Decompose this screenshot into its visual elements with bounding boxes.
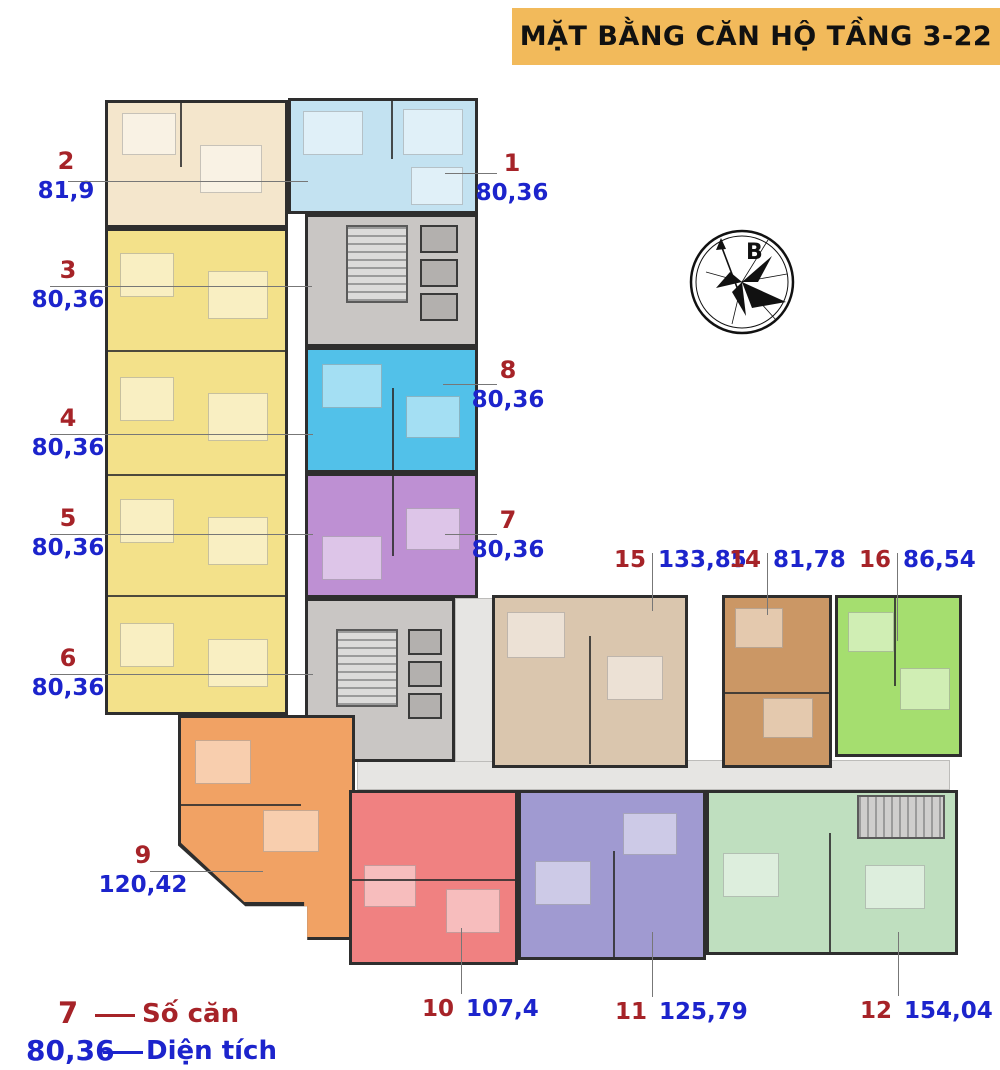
unit-7-region xyxy=(305,473,478,598)
unit-7-number: 7 xyxy=(463,507,553,533)
unit-2-label: 2 81,9 xyxy=(21,148,111,204)
page-title-banner: MẶT BẰNG CĂN HỘ TẦNG 3-22 xyxy=(512,8,1000,65)
unit-12-number: 12 xyxy=(842,998,892,1024)
unit-10-region xyxy=(349,790,518,965)
leader-line xyxy=(50,286,312,287)
unit-3-area: 80,36 xyxy=(23,288,113,313)
unit-4-number: 4 xyxy=(23,405,113,431)
leader-line xyxy=(68,181,308,182)
leader-line xyxy=(445,173,497,174)
legend-number-label: Số căn xyxy=(142,999,239,1029)
elevator-stair-core-top xyxy=(305,214,478,347)
corridor-vertical xyxy=(455,598,495,762)
legend-area-line xyxy=(103,1051,143,1054)
unit-12-region xyxy=(706,790,958,955)
unit-14-number: 14 xyxy=(711,547,761,573)
units-3-6-region xyxy=(105,228,288,715)
unit-10-label: 10 107,4 xyxy=(404,996,539,1022)
unit-3-number: 3 xyxy=(23,257,113,283)
unit-6-area: 80,36 xyxy=(23,676,113,701)
unit-8-label: 8 80,36 xyxy=(463,357,553,413)
compass-north-label: B xyxy=(746,240,763,265)
unit-4-label: 4 80,36 xyxy=(23,405,113,461)
leader-line xyxy=(767,553,768,615)
unit-1-region xyxy=(288,98,478,214)
legend-number-example: 7 xyxy=(58,996,78,1030)
leader-line xyxy=(461,928,462,994)
unit-6-label: 6 80,36 xyxy=(23,645,113,701)
leader-line xyxy=(150,871,263,872)
unit-16-region xyxy=(835,595,962,757)
leader-line xyxy=(443,384,497,385)
unit-16-area: 86,54 xyxy=(903,548,976,573)
staircase-icon xyxy=(857,795,945,839)
unit-6-number: 6 xyxy=(23,645,113,671)
unit-12-label: 12 154,04 xyxy=(842,998,993,1024)
unit-12-area: 154,04 xyxy=(904,999,993,1024)
unit-8-region xyxy=(305,347,478,473)
leader-line xyxy=(898,932,899,996)
leader-line xyxy=(50,534,313,535)
unit-5-area: 80,36 xyxy=(23,536,113,561)
unit-15-number: 15 xyxy=(596,547,646,573)
leader-line xyxy=(50,434,313,435)
unit-11-number: 11 xyxy=(597,999,647,1025)
unit-9-area: 120,42 xyxy=(98,873,188,898)
unit-16-label: 16 86,54 xyxy=(841,547,976,573)
unit-8-area: 80,36 xyxy=(463,388,553,413)
unit-10-number: 10 xyxy=(404,996,454,1022)
unit-9-region xyxy=(178,715,355,940)
unit-11-label: 11 125,79 xyxy=(597,999,748,1025)
unit-7-label: 7 80,36 xyxy=(463,507,553,563)
unit-15-region xyxy=(492,595,688,768)
staircase-icon xyxy=(336,629,398,707)
leader-line xyxy=(652,553,653,611)
elevator-icon xyxy=(420,225,458,253)
unit-5-label: 5 80,36 xyxy=(23,505,113,561)
floor-plan-page: MẶT BẰNG CĂN HỘ TẦNG 3-22 xyxy=(0,0,1000,1070)
unit-2-number: 2 xyxy=(21,148,111,174)
unit-14-label: 14 81,78 xyxy=(711,547,846,573)
unit-1-area: 80,36 xyxy=(467,181,557,206)
elevator-icon xyxy=(408,693,442,719)
unit-9-label: 9 120,42 xyxy=(98,842,188,898)
legend-number-line xyxy=(95,1014,135,1017)
unit-7-area: 80,36 xyxy=(463,538,553,563)
unit-10-area: 107,4 xyxy=(466,997,539,1022)
unit-9-number: 9 xyxy=(98,842,188,868)
unit-14-area: 81,78 xyxy=(773,548,846,573)
unit-16-number: 16 xyxy=(841,547,891,573)
unit-11-region xyxy=(518,790,706,960)
legend-area-example: 80,36 xyxy=(26,1034,115,1067)
unit-3-label: 3 80,36 xyxy=(23,257,113,313)
leader-line xyxy=(50,674,313,675)
compass-icon: B xyxy=(688,228,796,336)
elevator-icon xyxy=(420,293,458,321)
unit-2-region xyxy=(105,100,288,228)
legend-area-label: Diện tích xyxy=(146,1036,277,1066)
unit-14-region xyxy=(722,595,832,768)
unit-11-area: 125,79 xyxy=(659,1000,748,1025)
unit-1-label: 1 80,36 xyxy=(467,150,557,206)
unit-8-number: 8 xyxy=(463,357,553,383)
leader-line xyxy=(445,534,497,535)
elevator-icon xyxy=(420,259,458,287)
leader-line xyxy=(897,553,898,641)
unit-5-number: 5 xyxy=(23,505,113,531)
unit-2-area: 81,9 xyxy=(21,179,111,204)
elevator-icon xyxy=(408,661,442,687)
unit-4-area: 80,36 xyxy=(23,436,113,461)
leader-line xyxy=(652,932,653,997)
elevator-icon xyxy=(408,629,442,655)
staircase-icon xyxy=(346,225,408,303)
